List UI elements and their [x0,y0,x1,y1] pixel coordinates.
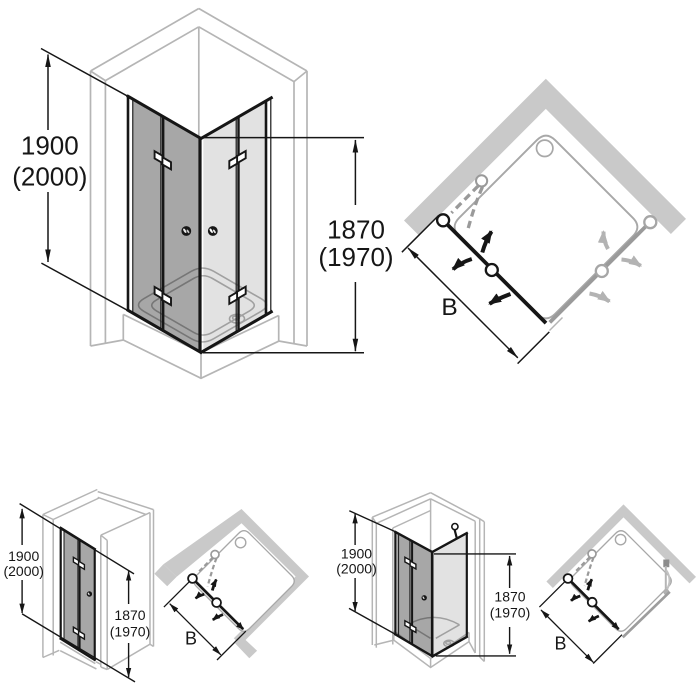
svg-text:(1970): (1970) [318,242,393,272]
svg-text:B: B [441,294,457,321]
svg-text:1870: 1870 [114,607,145,623]
svg-text:B: B [554,634,566,654]
svg-text:(2000): (2000) [12,162,87,192]
svg-text:(2000): (2000) [3,563,43,579]
svg-text:1870: 1870 [327,215,385,245]
svg-text:1870: 1870 [494,589,525,605]
svg-text:(1970): (1970) [490,605,530,621]
svg-text:(1970): (1970) [110,624,150,640]
svg-text:1900: 1900 [8,548,39,564]
svg-text:1900: 1900 [341,546,372,562]
svg-text:1900: 1900 [21,131,79,161]
svg-text:(2000): (2000) [336,561,376,577]
svg-text:B: B [185,629,197,649]
